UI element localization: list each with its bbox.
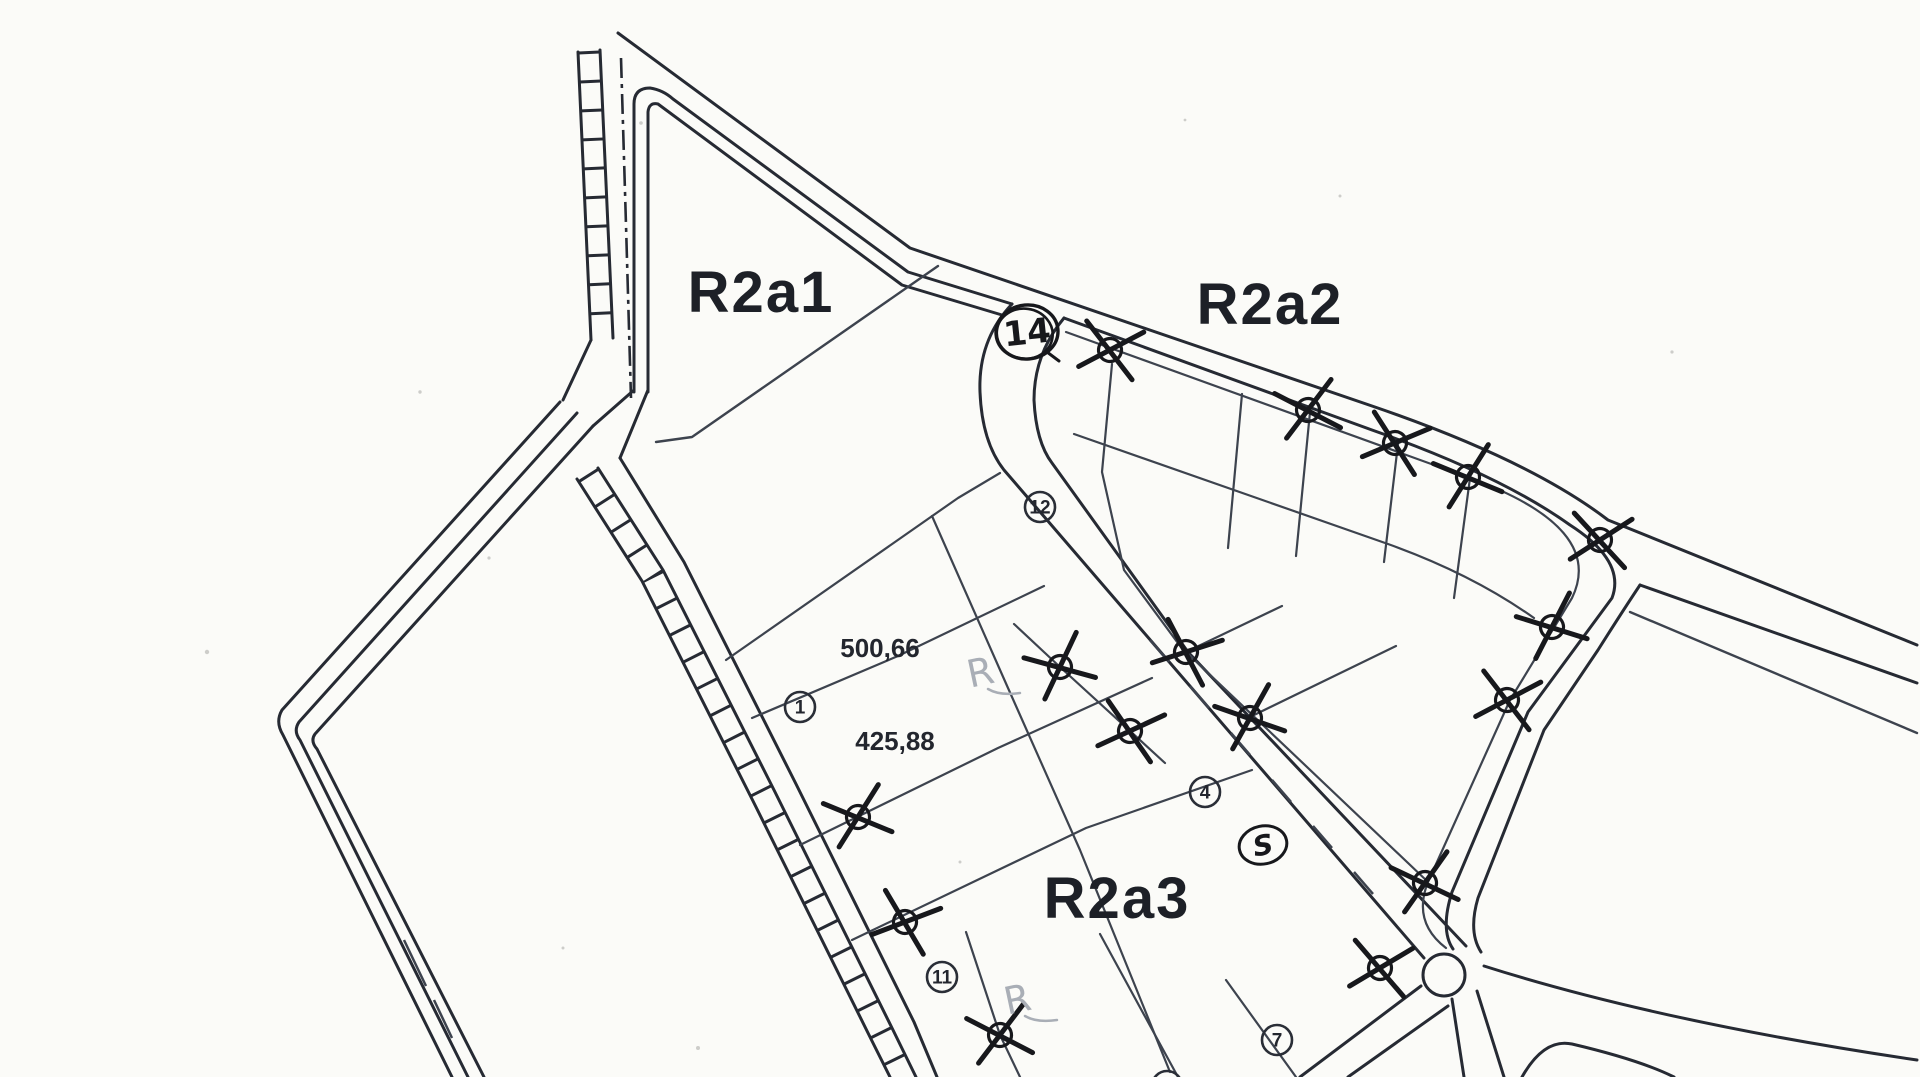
junction-island-curve: [1522, 1043, 1674, 1077]
east-parcel-boundary-line: [1630, 612, 1917, 733]
area-measurement: 500,66: [840, 633, 920, 663]
r2a2-parcel-edge: [1066, 332, 1579, 948]
east-road-east-edge: [1474, 585, 1640, 952]
cut-plot-marker: [1152, 1071, 1182, 1077]
plot-number-marker: 7: [1262, 1025, 1292, 1055]
plot-number: 12: [1029, 498, 1050, 519]
plot-number: 7: [1272, 1031, 1283, 1052]
road-centerline-dash: [1190, 686, 1209, 708]
r2a2-division-2: [1228, 394, 1242, 548]
pencil-mark: R: [963, 648, 1020, 697]
crossed-plot-marker: [1346, 936, 1414, 997]
scanned-cadastral-plan: R2a1R2a2R2a3500,66425,88147111214SRR: [0, 0, 1920, 1077]
handwritten-circled-s: S: [1236, 821, 1291, 868]
ladder-rungs-top-left: [589, 51, 602, 339]
plot-number: 11: [932, 968, 953, 989]
r2a3-column-line-1: [932, 516, 1170, 1072]
plot-number-marker: 11: [927, 962, 957, 992]
crossed-plot-marker: [1566, 509, 1633, 568]
road-centerline-dash: [1313, 826, 1332, 848]
crossed-plot-marker: [868, 887, 941, 955]
zone-label: R2a2: [1197, 272, 1344, 337]
handwritten-letter: S: [1250, 827, 1276, 863]
southwest-exit-road-edge1: [1300, 986, 1421, 1077]
crossed-plot-marker: [1515, 593, 1588, 660]
pencil-letter: R: [1000, 975, 1035, 1024]
r2a3-column-line-2: [1014, 624, 1165, 763]
left-ladder-road-taper: [563, 340, 591, 400]
top-road-outer-line: [618, 33, 1917, 645]
r2a2-division-3: [1296, 412, 1310, 556]
crossed-plot-marker: [822, 784, 892, 848]
southwest-road-line1: [279, 402, 560, 1077]
handwritten-circled-14: 14: [994, 302, 1061, 362]
r2a3-west-road-edge2: [620, 458, 937, 1077]
handwritten-number: 14: [1001, 311, 1052, 356]
crossed-plot-marker: [1472, 667, 1542, 731]
r2a3-west-road-ladder-rail: [577, 479, 890, 1077]
r2a2-division-6: [1252, 646, 1396, 716]
r2a2-roadside-strip-line: [1186, 652, 1428, 882]
r2a3-row-line-a: [726, 473, 1000, 660]
area-measurement: 425,88: [855, 726, 935, 756]
parcel-boundary-dashdot-line: [621, 58, 631, 398]
left-ladder-road-rail-east: [600, 50, 613, 338]
crossed-plot-marker: [1213, 684, 1285, 750]
roundabout: [1423, 954, 1465, 996]
plot-number-marker: 12: [1025, 492, 1055, 522]
road-centerline-dash: [1354, 872, 1373, 894]
pencil-mark: R: [1000, 975, 1057, 1024]
southwest-road-line3: [313, 426, 593, 1077]
zone-label: R2a1: [688, 260, 835, 325]
r2a3-bottom-division-2: [1100, 934, 1178, 1077]
plot-number: 4: [1200, 783, 1211, 804]
ladder-rungs-southwest: [588, 474, 903, 1077]
markers-and-labels-layer: R2a1R2a2R2a3500,66425,88147111214SRR: [688, 260, 1633, 1064]
plot-number: 1: [795, 698, 806, 719]
southwest-exit-road-edge2: [1348, 1006, 1448, 1077]
road-shoulder-dash: [404, 940, 426, 986]
southwest-road-line2: [296, 413, 577, 1077]
r2a2-division-1: [1102, 364, 1186, 654]
junction-connector1: [593, 390, 634, 426]
zone-label: R2a3: [1044, 866, 1191, 931]
left-ladder-road-rail-west: [578, 52, 591, 340]
diagonal-road-east-edge: [1034, 318, 1466, 946]
cadastral-plan-map: R2a1R2a2R2a3500,66425,88147111214SRR: [0, 0, 1920, 1077]
south-exit-road-edge2: [1477, 991, 1504, 1077]
road-centerline-dash: [1272, 780, 1291, 802]
parcel-grid: [726, 332, 1579, 1077]
south-exit-road-edge1: [1452, 999, 1464, 1077]
plot-number-marker: 4: [1190, 777, 1220, 807]
r2a1-hairpin-road-inner: [648, 104, 1002, 392]
